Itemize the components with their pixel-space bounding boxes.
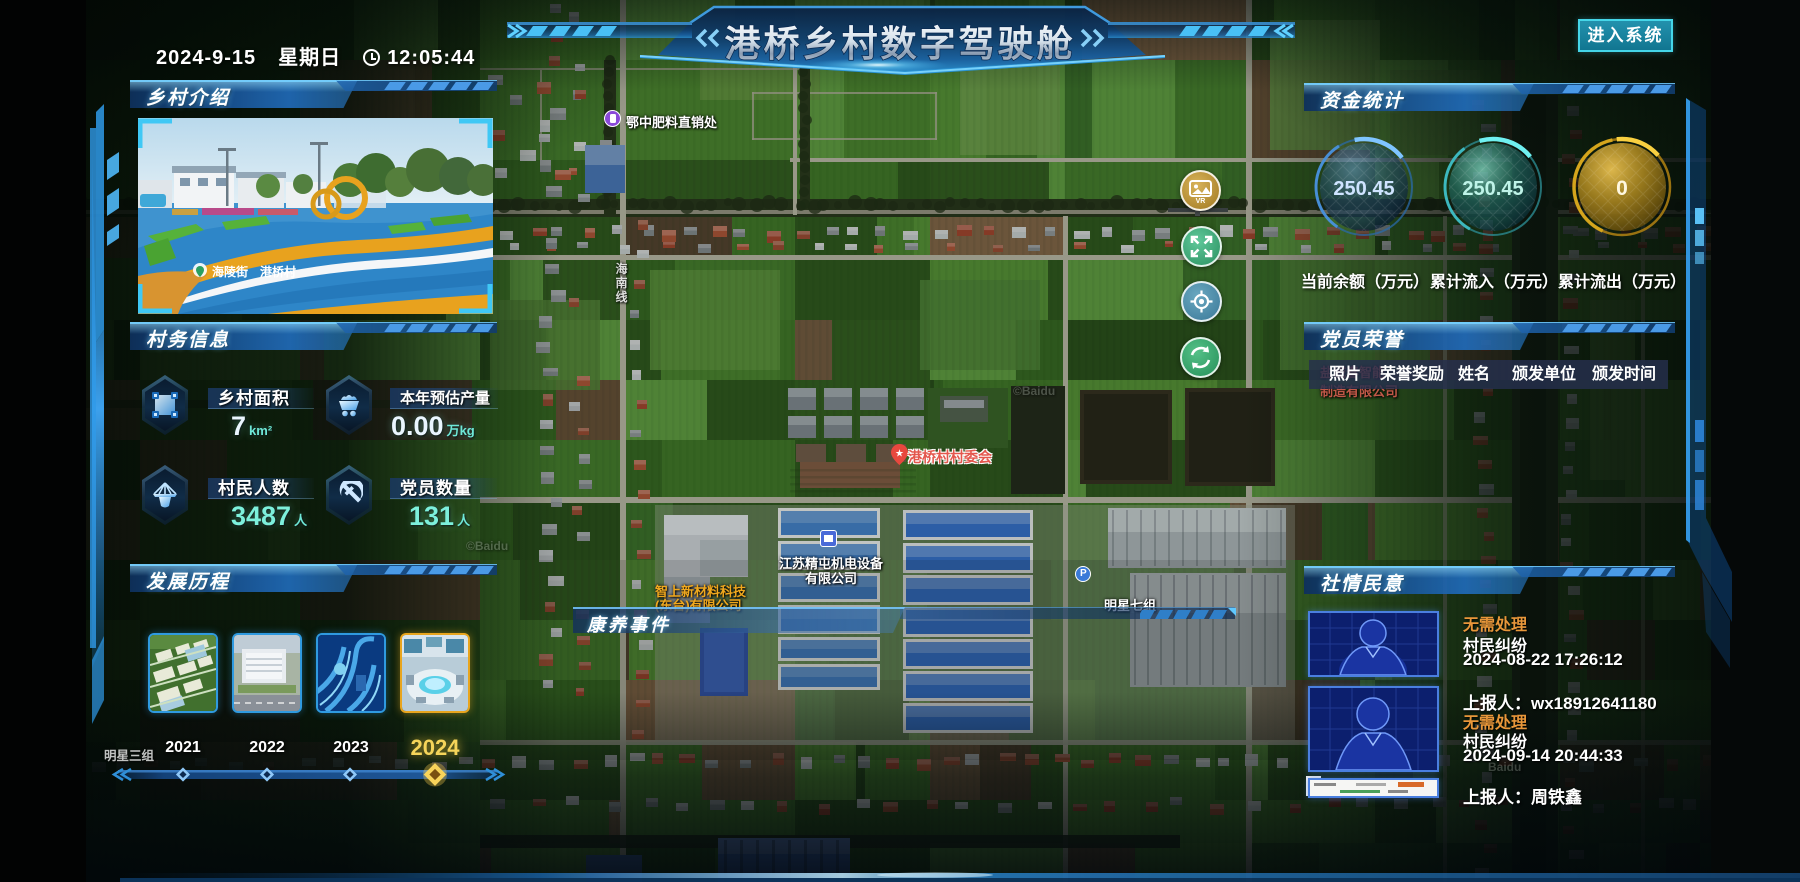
- svg-text:0: 0: [1616, 177, 1628, 200]
- svg-text:250.45: 250.45: [1462, 178, 1523, 200]
- svg-text:250.45: 250.45: [1333, 178, 1394, 200]
